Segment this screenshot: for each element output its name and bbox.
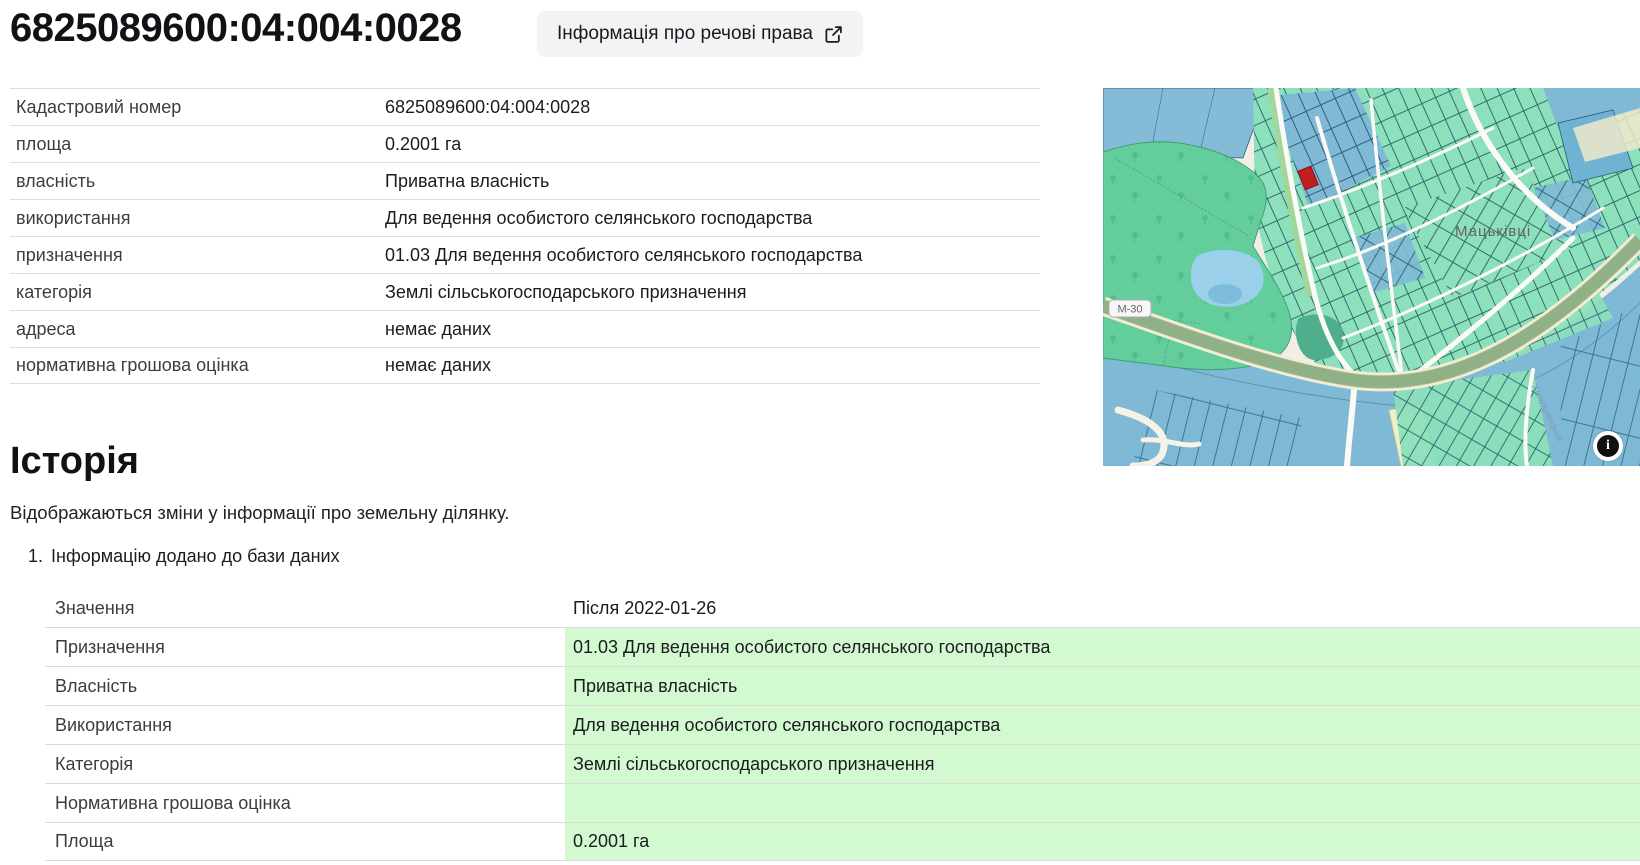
row-label: власність xyxy=(10,171,385,192)
row-value: немає даних xyxy=(385,355,1040,376)
table-row: Площа 0.2001 га xyxy=(45,822,1640,861)
row-label: Площа xyxy=(45,823,565,860)
table-row: власність Приватна власність xyxy=(10,162,1040,199)
row-label: Призначення xyxy=(45,628,565,666)
history-header-row: Значення Після 2022-01-26 xyxy=(45,589,1640,627)
table-row: Власність Приватна власність xyxy=(45,666,1640,705)
road-label: М-30 xyxy=(1117,304,1142,316)
history-item-number: 1. xyxy=(28,546,43,567)
map-attribution-button[interactable]: i xyxy=(1593,431,1623,461)
history-value-header: Значення xyxy=(45,589,565,627)
history-heading: Історія xyxy=(10,440,139,483)
map-canvas: М-30 Мацьківці Хмельницька xyxy=(1103,88,1640,466)
history-item-label: Інформацію додано до бази даних xyxy=(51,546,340,567)
cadastral-parcel-page: 6825089600:04:004:0028 Інформація про ре… xyxy=(0,0,1640,865)
row-value: Землі сільськогосподарського призначення xyxy=(565,745,1640,783)
history-description: Відображаються зміни у інформації про зе… xyxy=(10,502,509,524)
row-value: Для ведення особистого селянського госпо… xyxy=(565,706,1640,744)
row-value: немає даних xyxy=(385,319,1040,340)
row-label: Кадастровий номер xyxy=(10,97,385,118)
row-value: 0.2001 га xyxy=(385,134,1040,155)
table-row: площа 0.2001 га xyxy=(10,125,1040,162)
row-value: Приватна власність xyxy=(385,171,1040,192)
table-row: адреса немає даних xyxy=(10,310,1040,347)
row-label: площа xyxy=(10,134,385,155)
row-value xyxy=(565,784,1640,822)
external-link-icon xyxy=(824,25,843,44)
row-value: 6825089600:04:004:0028 xyxy=(385,97,1040,118)
table-row: Нормативна грошова оцінка xyxy=(45,783,1640,822)
table-row: Призначення 01.03 Для ведення особистого… xyxy=(45,627,1640,666)
parcel-info-table: Кадастровий номер 6825089600:04:004:0028… xyxy=(10,88,1040,384)
history-item-title: 1. Інформацію додано до бази даних xyxy=(28,546,340,567)
history-table: Значення Після 2022-01-26 Призначення 01… xyxy=(45,589,1640,861)
road-badge: М-30 xyxy=(1109,300,1151,317)
table-row: використання Для ведення особистого селя… xyxy=(10,199,1040,236)
row-value: Землі сільськогосподарського призначення xyxy=(385,282,1040,303)
row-value: 0.2001 га xyxy=(565,823,1640,860)
page-title: 6825089600:04:004:0028 xyxy=(10,6,462,51)
table-row: категорія Землі сільськогосподарського п… xyxy=(10,273,1040,310)
row-label: призначення xyxy=(10,245,385,266)
row-label: Власність xyxy=(45,667,565,705)
row-value: Приватна власність xyxy=(565,667,1640,705)
property-rights-button-label: Інформація про речові права xyxy=(557,23,813,45)
history-date-header: Після 2022-01-26 xyxy=(565,589,1640,627)
table-row: нормативна грошова оцінка немає даних xyxy=(10,347,1040,384)
info-icon: i xyxy=(1597,435,1619,457)
cadastral-map[interactable]: М-30 Мацьківці Хмельницька i xyxy=(1103,88,1640,466)
row-value: Для ведення особистого селянського госпо… xyxy=(385,208,1040,229)
row-value: 01.03 Для ведення особистого селянського… xyxy=(385,245,1040,266)
row-label: адреса xyxy=(10,319,385,340)
table-row: призначення 01.03 Для ведення особистого… xyxy=(10,236,1040,273)
table-row: Використання Для ведення особистого селя… xyxy=(45,705,1640,744)
row-label: категорія xyxy=(10,282,385,303)
row-label: Нормативна грошова оцінка xyxy=(45,784,565,822)
row-value: 01.03 Для ведення особистого селянського… xyxy=(565,628,1640,666)
row-label: Категорія xyxy=(45,745,565,783)
row-label: Використання xyxy=(45,706,565,744)
town-label: Мацьківці xyxy=(1455,223,1531,240)
row-label: використання xyxy=(10,208,385,229)
property-rights-button[interactable]: Інформація про речові права xyxy=(537,11,863,57)
table-row: Кадастровий номер 6825089600:04:004:0028 xyxy=(10,88,1040,125)
row-label: нормативна грошова оцінка xyxy=(10,355,385,376)
table-row: Категорія Землі сільськогосподарського п… xyxy=(45,744,1640,783)
